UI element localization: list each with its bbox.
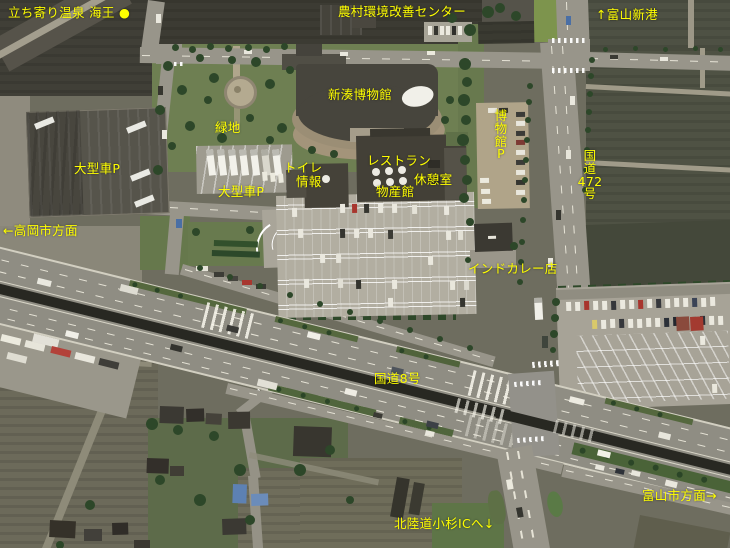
car (244, 50, 252, 54)
car (278, 174, 284, 183)
vehicle (170, 344, 183, 353)
label-rural-environment-center: 農村環境改善センター (338, 5, 466, 19)
car (556, 210, 561, 220)
car (516, 190, 525, 195)
tree (520, 217, 526, 223)
tree (286, 66, 294, 74)
car (340, 52, 348, 56)
tree (347, 309, 353, 315)
tree (245, 515, 255, 525)
car (320, 254, 325, 263)
crosswalk (552, 68, 586, 73)
car (516, 170, 525, 175)
car (647, 299, 652, 308)
tree (459, 58, 471, 70)
car (516, 131, 525, 136)
label-museum-parking: 博 物 館 P (492, 110, 510, 161)
tree (459, 193, 469, 203)
label-indian-curry-shop: インドカレー店 (468, 262, 558, 276)
tree (246, 226, 254, 234)
tree (552, 298, 560, 306)
tree (227, 274, 233, 280)
satellite-map: 立ち寄り温泉 海王 ● 農村環境改善センター ↑富山新港 新湊博物館 緑地 大型… (0, 0, 730, 548)
tree (458, 94, 470, 106)
car (620, 300, 625, 309)
tree (522, 177, 528, 183)
car (683, 298, 688, 307)
tree (85, 500, 95, 510)
car (340, 229, 345, 238)
car (655, 318, 660, 327)
label-shinminato-museum: 新湊博物館 (328, 88, 392, 102)
vehicle (658, 432, 671, 441)
car (450, 281, 455, 290)
tree (308, 146, 316, 154)
tree (550, 347, 556, 353)
car (637, 318, 642, 327)
tree (185, 121, 195, 131)
tree (495, 3, 505, 13)
car (638, 299, 643, 308)
traffic-island (545, 490, 565, 519)
car (242, 280, 252, 285)
tree (525, 117, 531, 123)
car (665, 299, 670, 308)
label-toyama-shinko-port: ↑富山新港 (596, 8, 658, 22)
tree (251, 57, 261, 67)
tree (266, 136, 274, 144)
tree (462, 77, 472, 87)
car (601, 320, 606, 329)
house-roof (222, 518, 247, 535)
tree (467, 345, 473, 351)
tree (257, 283, 263, 289)
house-roof (112, 522, 128, 535)
label-route-8: 国道8号 (374, 372, 421, 386)
building-annex (370, 128, 430, 137)
car (692, 298, 697, 307)
car (388, 230, 393, 239)
car (542, 336, 548, 348)
car (412, 205, 417, 214)
car (392, 204, 397, 213)
car (664, 317, 669, 326)
label-green-space: 緑地 (215, 121, 241, 135)
car (610, 55, 618, 59)
label-spa-kaio: 立ち寄り温泉 海王 ● (8, 6, 130, 20)
car (570, 96, 575, 105)
car (458, 26, 462, 35)
car (566, 302, 571, 311)
tree (521, 197, 527, 203)
tree (146, 418, 158, 430)
tree (173, 425, 183, 435)
house-roof (186, 408, 204, 422)
car (338, 279, 343, 288)
car (575, 302, 580, 311)
car (156, 14, 161, 23)
shed (676, 316, 690, 331)
tree (517, 279, 523, 285)
roof-vent (322, 175, 330, 183)
label-products-hall: 物産館 (376, 185, 414, 199)
tree (207, 43, 214, 50)
tree (464, 24, 476, 36)
house-roof (159, 406, 184, 424)
car (162, 130, 167, 139)
tree (197, 265, 203, 271)
car (428, 256, 433, 265)
field-path (688, 0, 694, 48)
car (619, 319, 624, 328)
vehicle (569, 396, 585, 405)
car (298, 229, 303, 238)
car (158, 86, 163, 95)
tree (510, 242, 518, 250)
car (611, 300, 616, 309)
car (458, 231, 463, 240)
car (628, 319, 633, 328)
label-route-472: 国 道 472 号 (576, 150, 604, 201)
car (270, 173, 276, 182)
tree (189, 46, 196, 53)
tree (265, 79, 275, 89)
car (592, 320, 597, 329)
tree (346, 496, 354, 504)
tree (209, 73, 219, 83)
field-green (534, 0, 558, 42)
car (446, 231, 451, 240)
car (444, 206, 449, 215)
house-roof (146, 458, 169, 474)
tree (441, 116, 449, 124)
tree (196, 54, 204, 62)
tree (155, 475, 165, 485)
tree (551, 314, 559, 322)
car (709, 316, 714, 325)
tree (177, 85, 187, 95)
car (464, 281, 469, 290)
tree (317, 301, 323, 307)
car (364, 204, 369, 213)
tree (586, 109, 592, 115)
tree (457, 134, 469, 146)
label-toilet: トイレ (284, 161, 322, 175)
tree (588, 73, 594, 79)
car (566, 16, 571, 25)
tree (228, 56, 236, 64)
car (602, 301, 607, 310)
tree (482, 6, 494, 18)
car (378, 204, 383, 213)
house-roof (228, 412, 250, 429)
tree (225, 45, 232, 52)
house-roof (49, 520, 76, 538)
car (718, 316, 723, 325)
tree (550, 330, 558, 338)
tree (460, 155, 470, 165)
bus-route472 (534, 298, 543, 320)
tree (325, 445, 335, 455)
tree (234, 464, 246, 476)
car (214, 272, 224, 277)
tree (446, 96, 454, 104)
tree (163, 61, 173, 71)
car (674, 298, 679, 307)
label-large-vehicle-parking-center: 大型車P (218, 185, 264, 199)
car (656, 299, 661, 308)
tree (245, 44, 252, 51)
tree (462, 175, 472, 185)
roof-mark (488, 236, 496, 239)
car (482, 199, 491, 204)
tree (461, 115, 471, 125)
tree (377, 318, 383, 324)
tree (511, 11, 521, 21)
tree (633, 46, 638, 51)
car (356, 280, 361, 289)
car (388, 298, 393, 307)
shed (690, 316, 704, 331)
house-roof (84, 529, 102, 541)
car (428, 26, 432, 35)
label-to-toyama-city: 富山市方面→ (642, 489, 717, 503)
tree (407, 327, 413, 333)
plaza-center (234, 86, 241, 93)
label-large-vehicle-parking-west: 大型車P (74, 162, 120, 176)
tree (589, 57, 595, 63)
tree (155, 105, 165, 115)
car (516, 150, 525, 155)
car (516, 121, 525, 126)
plaza-circle (224, 76, 257, 109)
vehicle (37, 278, 52, 287)
road-route472-north (556, 0, 589, 42)
tree (153, 165, 163, 175)
tree (587, 91, 593, 97)
vehicle (65, 330, 79, 339)
car (446, 26, 450, 35)
car (352, 204, 357, 213)
label-to-hokuriku-kosugi-ic: 北陸道小杉ICへ↓ (394, 517, 495, 531)
tree (718, 47, 723, 52)
crosswalk (552, 38, 586, 43)
tree (263, 46, 270, 53)
house-roof (134, 540, 150, 548)
car (304, 279, 309, 288)
label-information: 情報 (296, 175, 322, 189)
label-restaurant: レストラン (367, 154, 431, 168)
car (368, 229, 373, 238)
tree (519, 239, 525, 245)
car (392, 280, 397, 289)
tree (192, 228, 200, 236)
house-roof (170, 466, 184, 476)
house-roof (251, 493, 268, 506)
car (262, 172, 268, 181)
car (340, 204, 345, 213)
house-roof (232, 484, 247, 503)
tree (527, 83, 533, 89)
tree (330, 150, 338, 158)
roof-vent (385, 167, 393, 175)
car (336, 254, 341, 263)
car (427, 51, 435, 55)
tree (603, 47, 608, 52)
tree (437, 336, 443, 342)
car (292, 208, 297, 217)
tree (56, 541, 64, 548)
car (629, 300, 634, 309)
tree (294, 464, 306, 476)
car (710, 297, 715, 306)
car (701, 297, 706, 306)
tree (523, 157, 529, 163)
car (712, 384, 717, 393)
aerial-photo-scene (0, 0, 730, 548)
tree (194, 494, 206, 506)
tree (287, 292, 293, 298)
tree (693, 46, 698, 51)
car (481, 189, 490, 194)
car (516, 112, 525, 117)
car (700, 336, 705, 345)
car (566, 150, 571, 159)
car (660, 57, 668, 61)
car (593, 301, 598, 310)
label-to-takaoka-city: ←高岡市方面 (3, 224, 78, 238)
tree (526, 99, 532, 105)
tree (585, 127, 591, 133)
east-lot-stripes (576, 331, 730, 404)
tree (524, 137, 530, 143)
car (460, 298, 465, 307)
tree (466, 218, 474, 226)
house-roof (205, 413, 222, 425)
tree (209, 431, 219, 441)
field (633, 515, 730, 548)
crosswalk (171, 201, 177, 213)
car (610, 319, 615, 328)
tree (246, 114, 254, 122)
museum-annex (296, 44, 322, 56)
car (480, 178, 489, 183)
car (646, 318, 651, 327)
tree (168, 142, 176, 150)
tree (172, 44, 179, 51)
label-rest-room: 休憩室 (414, 173, 452, 187)
car (584, 301, 589, 310)
long-shed (478, 21, 534, 44)
tree (277, 123, 287, 133)
car (434, 26, 438, 35)
vehicle (344, 388, 357, 397)
car (354, 229, 359, 238)
tree (281, 43, 288, 50)
tree (204, 96, 212, 104)
roof-vent (372, 168, 380, 176)
tree (663, 47, 668, 52)
car (176, 219, 182, 228)
car (440, 26, 444, 35)
car (452, 26, 456, 35)
